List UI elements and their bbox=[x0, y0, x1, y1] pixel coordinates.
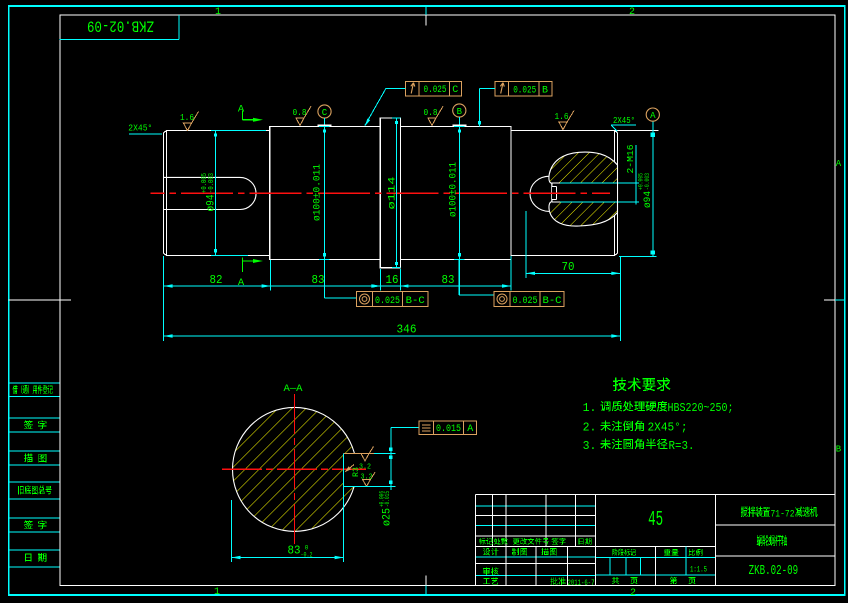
svg-text:C: C bbox=[452, 85, 458, 96]
svg-text:83: 83 bbox=[288, 544, 301, 558]
svg-text:0.025: 0.025 bbox=[513, 296, 538, 307]
svg-text:1: 1 bbox=[215, 7, 221, 18]
svg-text:1: 1 bbox=[214, 587, 220, 598]
svg-text:-0.015: -0.015 bbox=[384, 491, 391, 507]
svg-text:-0.003: -0.003 bbox=[644, 173, 651, 190]
svg-text:1.: 1. bbox=[583, 402, 597, 415]
svg-text:B: B bbox=[836, 445, 842, 455]
svg-text:83: 83 bbox=[312, 273, 325, 287]
svg-text:1.6: 1.6 bbox=[555, 111, 569, 122]
svg-text:R3: R3 bbox=[352, 467, 361, 477]
svg-text:A—A: A—A bbox=[284, 383, 304, 395]
svg-text:A: A bbox=[836, 159, 842, 169]
svg-text:0.025: 0.025 bbox=[424, 85, 447, 96]
svg-text:70: 70 bbox=[562, 261, 575, 274]
svg-text:0.025: 0.025 bbox=[375, 296, 400, 307]
svg-text:3.: 3. bbox=[583, 440, 597, 453]
svg-text:B: B bbox=[457, 107, 463, 117]
svg-text:HBS220~250;: HBS220~250; bbox=[668, 401, 734, 415]
svg-text:ZKB.02-09: ZKB.02-09 bbox=[87, 17, 154, 35]
svg-text:2X45°;: 2X45°; bbox=[648, 421, 688, 435]
svg-text:0: 0 bbox=[305, 545, 309, 552]
svg-text:3.2: 3.2 bbox=[361, 473, 373, 481]
svg-text:C: C bbox=[322, 108, 328, 118]
svg-text:ø94: ø94 bbox=[206, 194, 218, 211]
svg-text:B-C: B-C bbox=[543, 296, 562, 307]
svg-text:A: A bbox=[650, 111, 656, 121]
svg-text:2X45°: 2X45° bbox=[128, 123, 152, 134]
svg-text:16: 16 bbox=[386, 273, 399, 287]
svg-text:0.025: 0.025 bbox=[513, 85, 536, 96]
svg-text:A: A bbox=[238, 277, 245, 289]
svg-text:2: 2 bbox=[630, 588, 636, 599]
svg-text:ø25: ø25 bbox=[382, 508, 394, 526]
svg-text:2.: 2. bbox=[583, 422, 597, 435]
svg-text:71-72: 71-72 bbox=[771, 509, 795, 521]
svg-text:2: 2 bbox=[629, 7, 635, 18]
svg-text:-0.003: -0.003 bbox=[208, 173, 216, 193]
svg-text:2X45°: 2X45° bbox=[613, 115, 635, 126]
svg-text:346: 346 bbox=[397, 323, 417, 337]
svg-text:0.015: 0.015 bbox=[436, 424, 461, 435]
svg-text:ø100±0.011: ø100±0.011 bbox=[312, 164, 324, 221]
svg-text:ø114: ø114 bbox=[387, 177, 399, 210]
svg-text:2011-6-7: 2011-6-7 bbox=[568, 579, 595, 588]
svg-text:R=3.: R=3. bbox=[669, 439, 695, 453]
svg-text:-0.2: -0.2 bbox=[301, 552, 313, 559]
svg-text:45: 45 bbox=[648, 509, 663, 532]
svg-text:B-C: B-C bbox=[406, 296, 425, 307]
svg-text:2-M16: 2-M16 bbox=[625, 144, 636, 173]
svg-text:83: 83 bbox=[442, 273, 455, 287]
svg-text:1:1.5: 1:1.5 bbox=[690, 565, 707, 575]
svg-text:0.8: 0.8 bbox=[424, 107, 438, 118]
svg-text:A: A bbox=[467, 424, 473, 435]
svg-text:82: 82 bbox=[210, 273, 223, 287]
svg-text:A: A bbox=[238, 104, 245, 116]
svg-text:B: B bbox=[542, 85, 548, 96]
svg-text:ø100±0.011: ø100±0.011 bbox=[448, 162, 460, 217]
svg-text:ø94: ø94 bbox=[642, 191, 654, 208]
svg-text:ZKB.02-09: ZKB.02-09 bbox=[749, 564, 799, 579]
